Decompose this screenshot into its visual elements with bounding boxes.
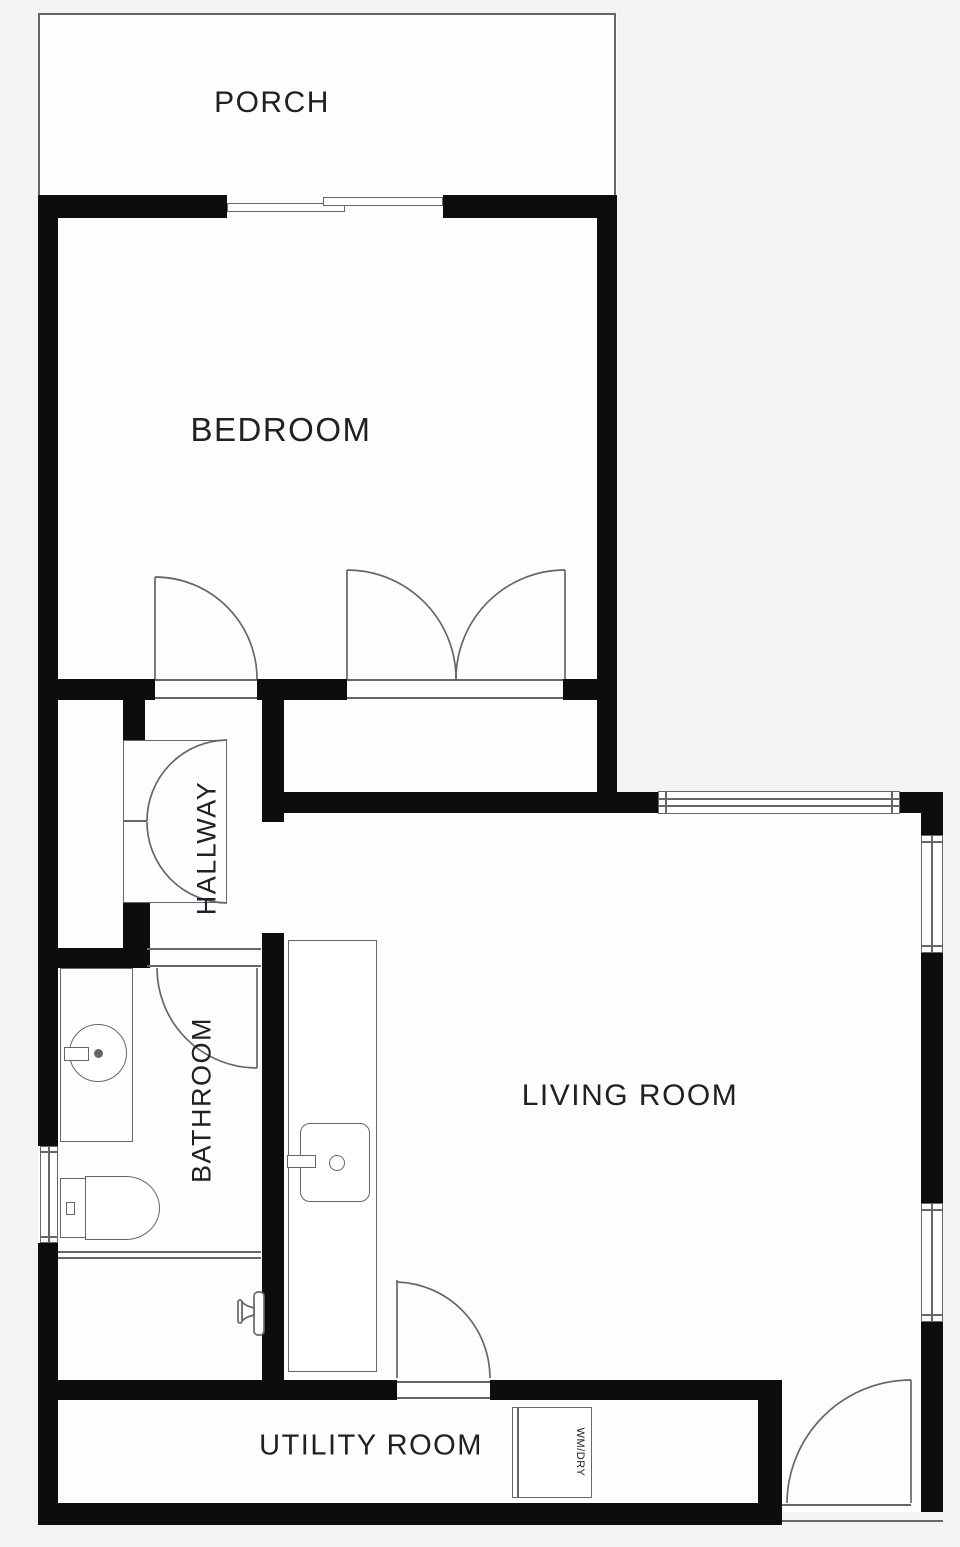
room-label-living-room: LIVING ROOM xyxy=(522,1079,739,1113)
room-label-bedroom: BEDROOM xyxy=(190,411,371,449)
entry-door-arc xyxy=(787,1380,911,1503)
shower-head-icon xyxy=(242,1302,254,1321)
bedroom-closet-door-arc xyxy=(347,570,456,679)
bedroom-door-arc xyxy=(155,577,257,679)
floor-plan: PORCH BEDROOM HALLWAY BATHROOM LIVING RO… xyxy=(0,0,960,1547)
washer-dryer-label: WM/DRY xyxy=(574,1428,586,1477)
utility-door-arc xyxy=(397,1282,490,1378)
bedroom-closet-door-arc xyxy=(456,570,565,679)
room-label-porch: PORCH xyxy=(214,86,330,120)
shower-handle-icon xyxy=(238,1300,242,1323)
room-label-bathroom: BATHROOM xyxy=(187,1017,218,1183)
door-swing-overlay xyxy=(0,0,960,1547)
shower-icon xyxy=(254,1292,264,1335)
room-label-hallway: HALLWAY xyxy=(192,781,223,916)
room-label-utility-room: UTILITY ROOM xyxy=(259,1430,483,1463)
